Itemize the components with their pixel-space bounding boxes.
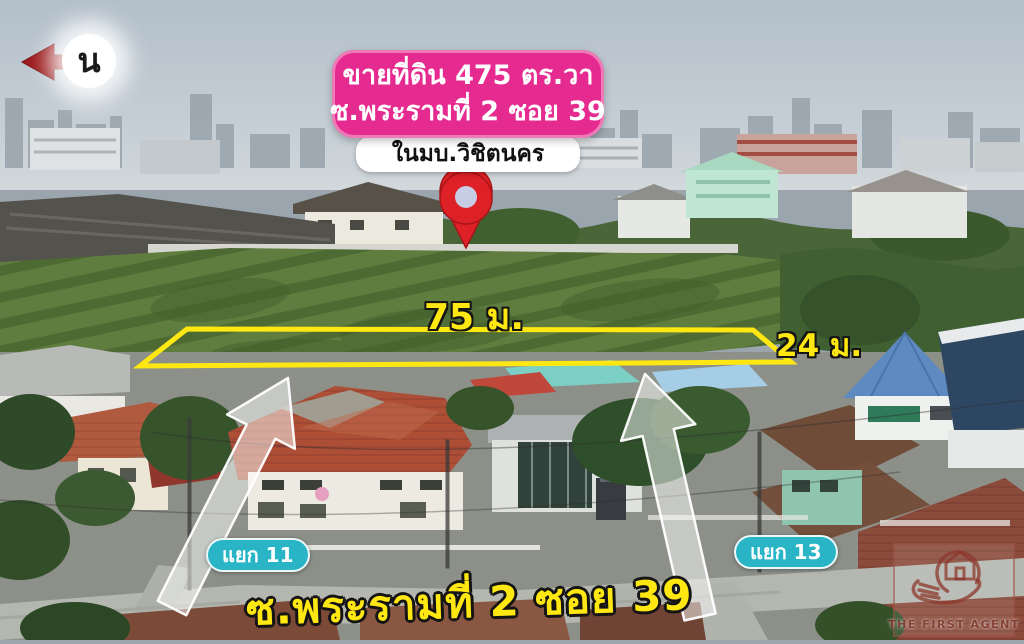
compass-north-indicator: น (10, 16, 130, 108)
junction-13-label: แยก 13 (750, 536, 822, 568)
plot-depth-label: 24 ม. (776, 320, 862, 370)
compass-disc: น (62, 34, 116, 88)
village-banner: ในมบ.วิชิตนคร (356, 136, 580, 172)
junction-13-badge: แยก 13 (734, 535, 838, 569)
sale-banner-line2: ซ.พระรามที่ 2 ซอย 39 (330, 95, 606, 129)
agency-brand-name: THE FIRST AGENT (888, 618, 1020, 631)
agency-watermark: THE FIRST AGENT (893, 543, 1015, 637)
sale-banner: ขายที่ดิน 475 ตร.วา ซ.พระรามที่ 2 ซอย 39 (332, 50, 604, 138)
aerial-listing-photo: น ขายที่ดิน 475 ตร.วา ซ.พระรามที่ 2 ซอย … (0, 0, 1024, 640)
sale-banner-line1: ขายที่ดิน 475 ตร.วา (342, 59, 593, 93)
junction-11-badge: แยก 11 (206, 538, 310, 572)
plot-width-label: 75 ม. (424, 288, 524, 345)
hand-house-logo-icon (904, 547, 1004, 613)
village-banner-label: ในมบ.วิชิตนคร (392, 136, 544, 172)
junction-11-label: แยก 11 (222, 539, 294, 571)
compass-letter: น (77, 44, 100, 78)
